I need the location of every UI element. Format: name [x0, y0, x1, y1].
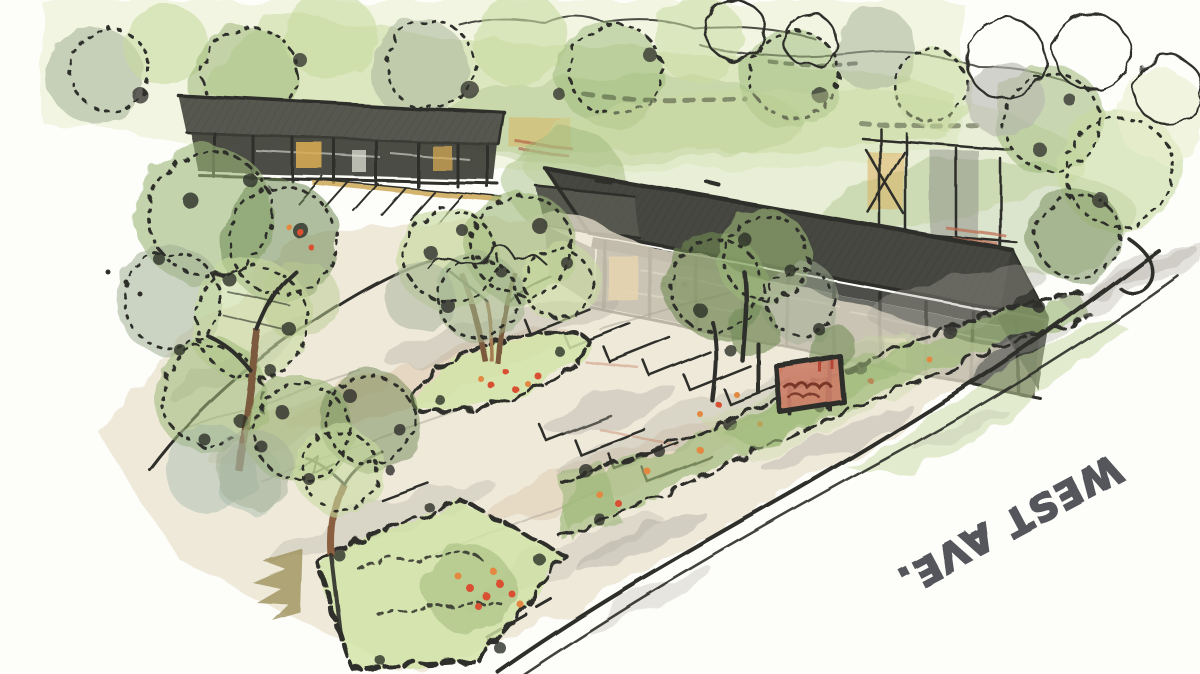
background-building-window: [296, 142, 322, 168]
site-rendering: WEST AVE.: [0, 0, 1200, 674]
site-rendering-sketch: WEST AVE.: [0, 0, 1200, 674]
monument-sign: [776, 356, 844, 414]
